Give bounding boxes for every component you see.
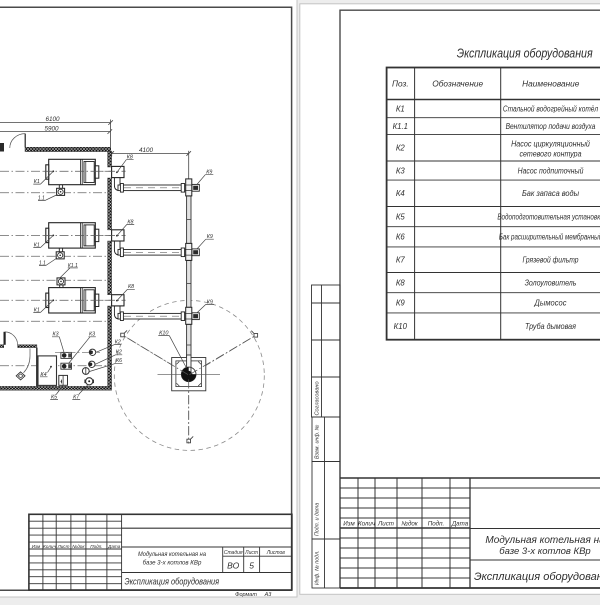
svg-text:сетевого контура: сетевого контура — [519, 149, 582, 159]
svg-text:К4: К4 — [396, 189, 406, 198]
svg-text:Бак запаса воды: Бак запаса воды — [522, 189, 579, 199]
svg-text:6100: 6100 — [45, 116, 60, 123]
svg-text:К6: К6 — [396, 233, 406, 242]
svg-text:Колич: Колич — [43, 544, 56, 549]
svg-text:Поз.: Поз. — [392, 79, 409, 89]
svg-text:Модульная котельная на: Модульная котельная на — [485, 535, 600, 546]
svg-text:5900: 5900 — [44, 125, 59, 132]
svg-text:Изм: Изм — [32, 544, 41, 549]
svg-text:Модульная котельная на: Модульная котельная на — [138, 550, 206, 559]
svg-text:Дата: Дата — [451, 521, 469, 528]
svg-text:ВО: ВО — [227, 561, 239, 571]
svg-text:Вентилятор подачи воздуха: Вентилятор подачи воздуха — [506, 121, 596, 131]
svg-text:5: 5 — [249, 561, 254, 571]
svg-text:Грязевой фильтр: Грязевой фильтр — [522, 255, 578, 265]
svg-text:Взам. инф. №: Взам. инф. № — [315, 424, 321, 459]
svg-text:Экспликация оборудования: Экспликация оборудования — [474, 571, 600, 583]
svg-text:Водоподготовительная установка: Водоподготовительная установка — [497, 212, 600, 222]
svg-text:Подп. и дата: Подп. и дата — [315, 503, 321, 536]
svg-text:Труба дымовая: Труба дымовая — [525, 322, 576, 332]
svg-text:Колич: Колич — [358, 521, 376, 528]
svg-text:Листов: Листов — [266, 550, 286, 556]
svg-text:Стадия: Стадия — [224, 550, 243, 556]
svg-text:базе 3-х котлов КВр: базе 3-х котлов КВр — [143, 558, 202, 566]
svg-text:К1: К1 — [396, 104, 405, 113]
svg-text:Экспликация оборудования: Экспликация оборудования — [125, 576, 220, 587]
svg-text:Обозначение: Обозначение — [432, 79, 483, 89]
svg-text:Экспликация оборудования: Экспликация оборудования — [457, 47, 593, 61]
svg-text:К7: К7 — [396, 255, 406, 264]
svg-text:Бак расширительный мембранный: Бак расширительный мембранный — [499, 232, 600, 242]
svg-text:Лист: Лист — [244, 550, 258, 556]
svg-text:Инф. № подл.: Инф. № подл. — [315, 550, 321, 585]
svg-text:Согласовано: Согласовано — [315, 381, 321, 415]
svg-text:Дата: Дата — [107, 544, 121, 549]
svg-text:К2: К2 — [396, 144, 406, 153]
svg-text:Изм: Изм — [343, 521, 355, 528]
svg-text:Золоуловитель: Золоуловитель — [525, 278, 577, 288]
svg-text:Подп.: Подп. — [90, 544, 102, 549]
svg-text:К8: К8 — [396, 278, 406, 287]
svg-text:Лист: Лист — [377, 521, 394, 528]
svg-text:Насос циркуляционный: Насос циркуляционный — [511, 139, 590, 149]
svg-text:Формат: Формат — [235, 592, 257, 598]
svg-text:№док: №док — [401, 521, 419, 528]
svg-text:Подп.: Подп. — [428, 521, 444, 528]
svg-text:4100: 4100 — [139, 147, 154, 154]
svg-text:К9: К9 — [396, 299, 406, 308]
svg-text:К3: К3 — [396, 166, 406, 175]
svg-text:№док: №док — [72, 544, 85, 549]
svg-text:базе 3-х котлов КВр: базе 3-х котлов КВр — [499, 546, 590, 557]
svg-text:Лист: Лист — [57, 544, 70, 549]
svg-text:А3: А3 — [264, 592, 273, 598]
svg-text:Насос подпиточный: Насос подпиточный — [518, 166, 584, 176]
svg-text:К10: К10 — [394, 322, 408, 331]
svg-text:Наименование: Наименование — [522, 79, 580, 89]
svg-text:К5: К5 — [396, 212, 406, 221]
svg-text:Стальной водогрейный котёл: Стальной водогрейный котёл — [503, 104, 599, 114]
svg-text:К1.1: К1.1 — [393, 122, 408, 131]
svg-text:Дымосос: Дымосос — [534, 298, 567, 307]
